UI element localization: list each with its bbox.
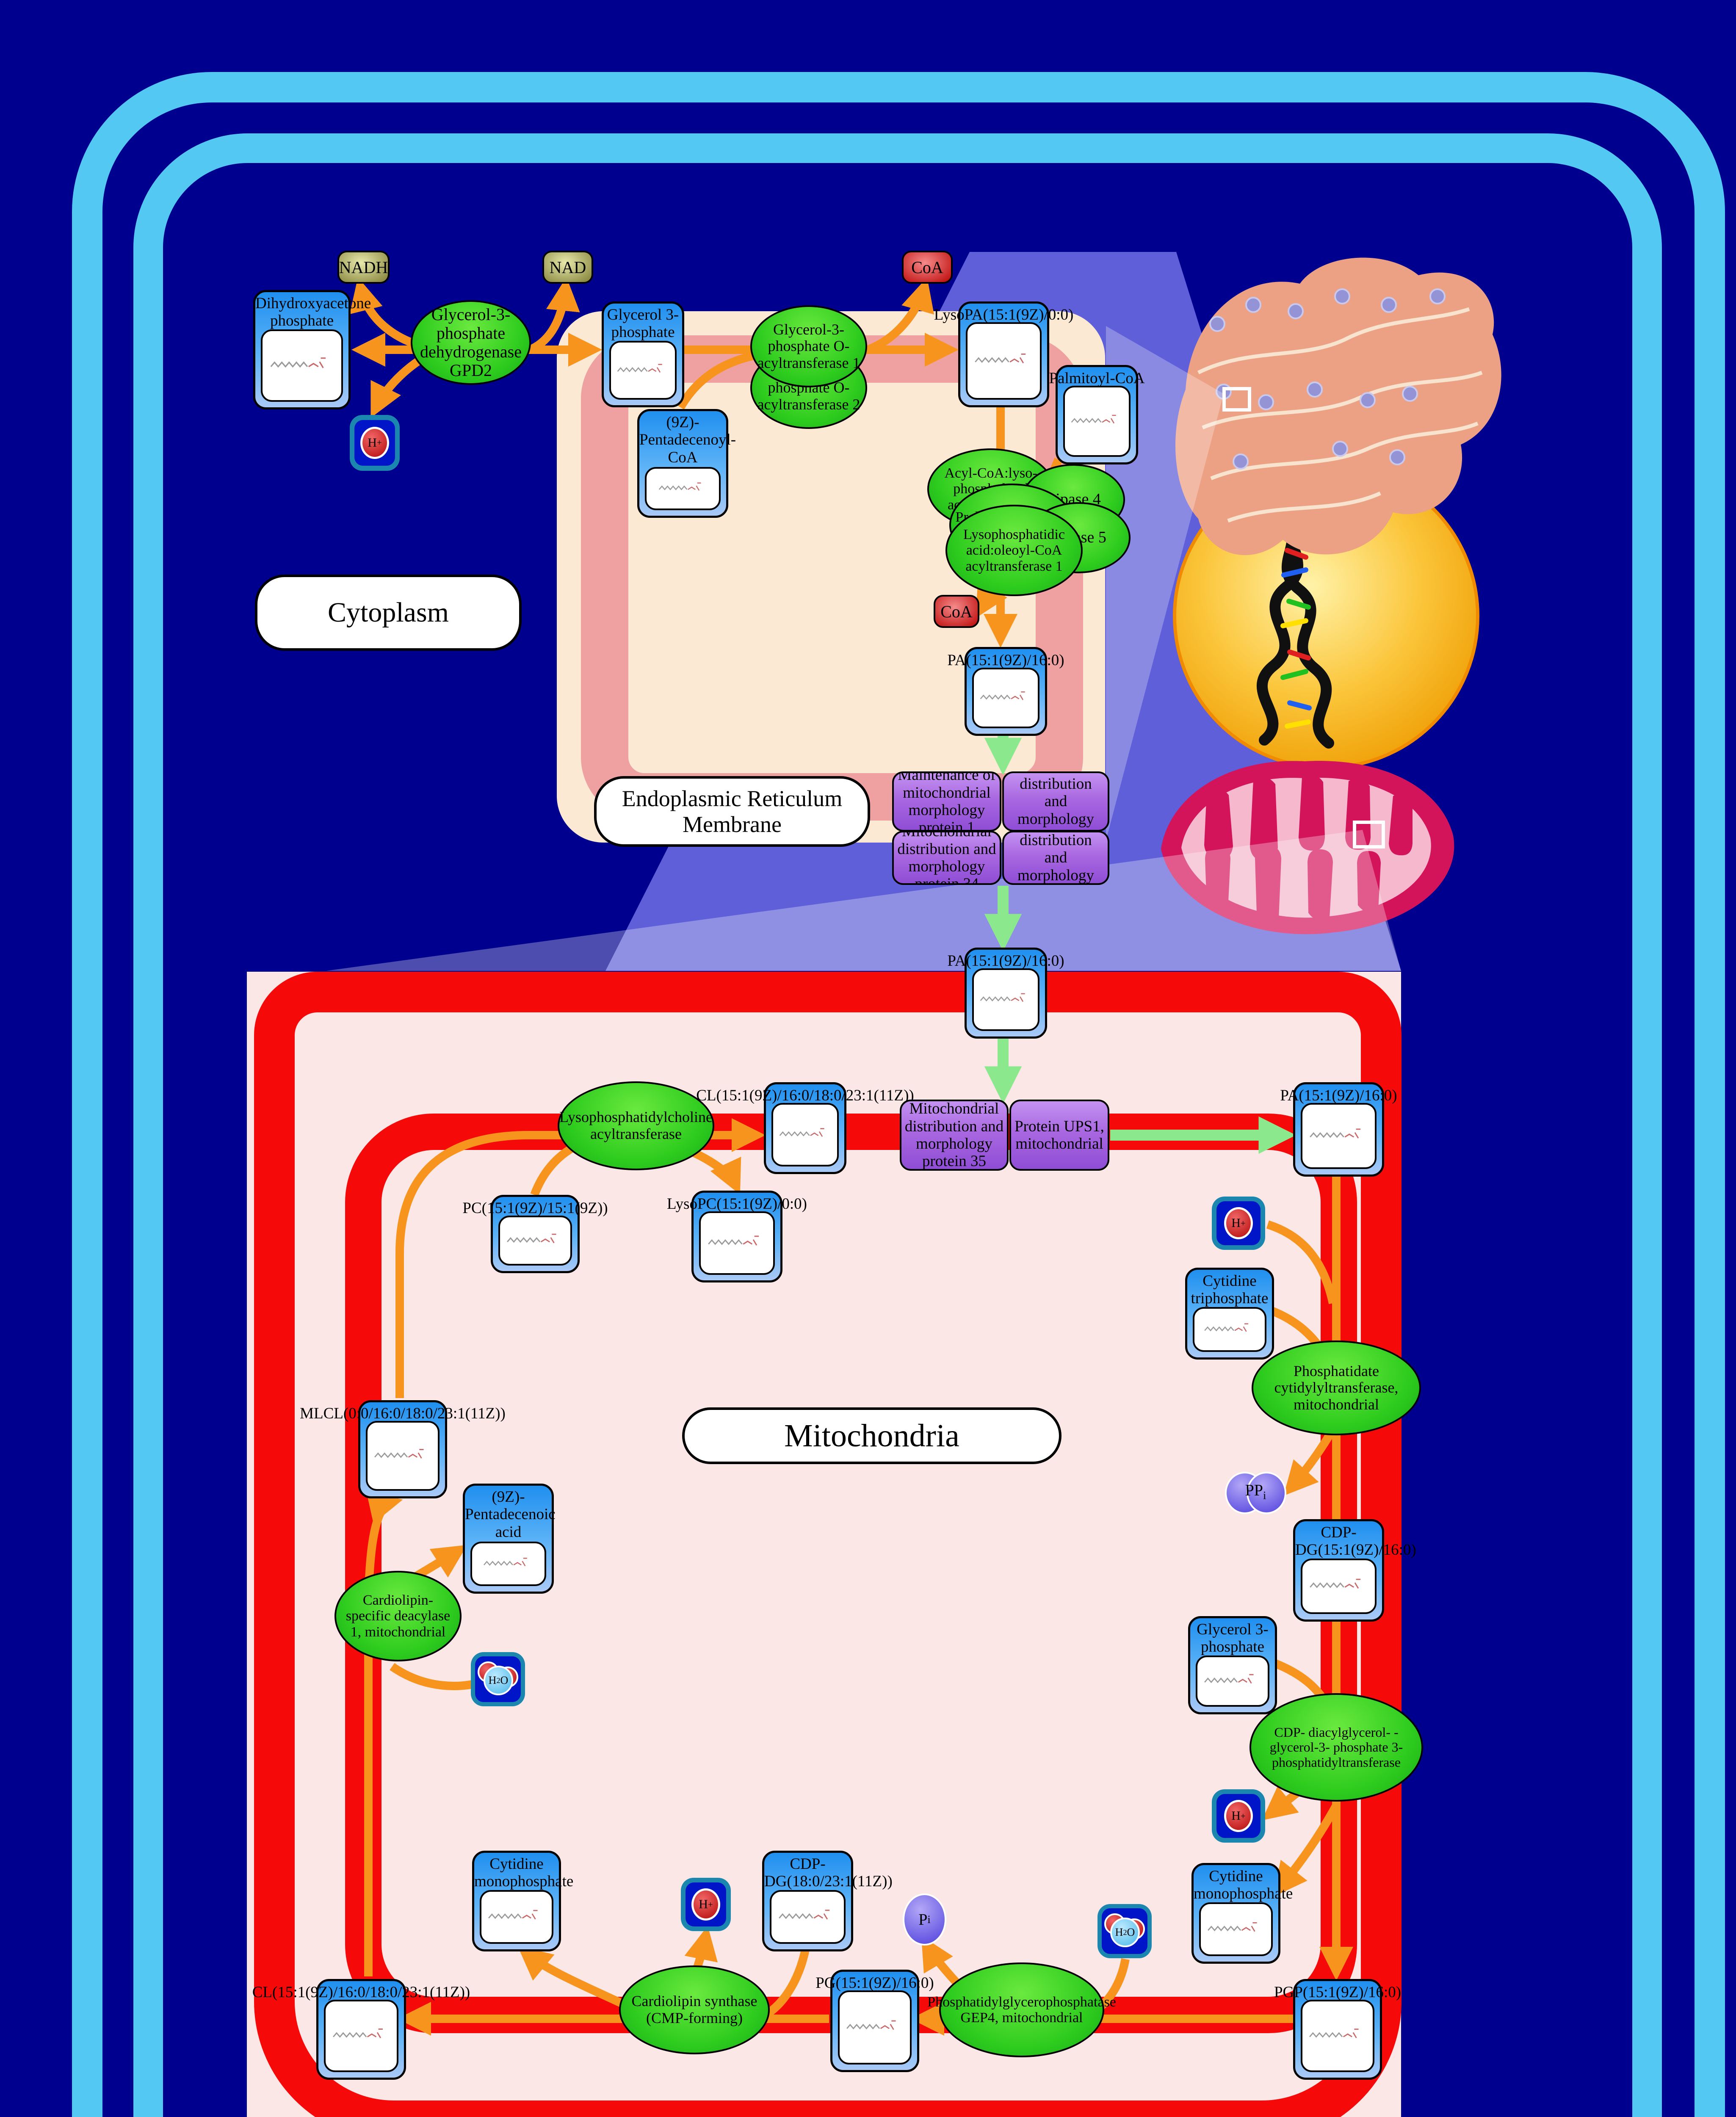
pathway-canvas: { "compartments": { "cytoplasm": "Cytopl…: [0, 0, 1736, 2117]
metabolite-pa-right[interactable]: PA(15:1(9Z)/16:0): [1293, 1082, 1384, 1177]
metabolite-palmitoyl-coa[interactable]: Palmitoyl-CoA: [1056, 365, 1138, 464]
molecule-structure: [1308, 2012, 1367, 2060]
ion-inner: H+: [1216, 1794, 1260, 1838]
metabolite-structure-panel: [366, 1421, 440, 1491]
metabolite-structure-panel: [770, 1890, 846, 1944]
metabolite-label: PA(15:1(9Z)/16:0): [1280, 1087, 1397, 1104]
molecule-structure: [487, 1899, 546, 1935]
enzyme-phosphatidate-cytidylyltransferase[interactable]: Phosphatidate cytidylyltransferase, mito…: [1252, 1340, 1421, 1435]
metabolite-label: Glycerol 3-phosphate: [604, 306, 682, 341]
metabolite-glycerol-3-phosphate-cytoplasm[interactable]: Glycerol 3-phosphate: [602, 301, 684, 407]
metabolite-structure-panel: [1063, 386, 1131, 457]
metabolite-structure-panel: [838, 1990, 912, 2064]
metabolite-structure-panel: [771, 1103, 839, 1166]
metabolite-label: PC(15:1(9Z)/15:1(9Z)): [462, 1199, 608, 1217]
metabolite-pc[interactable]: PC(15:1(9Z)/15:1(9Z)): [491, 1195, 580, 1273]
proton-ball: H+: [360, 427, 389, 459]
metabolite-structure-panel: [1301, 2000, 1374, 2072]
water-ball: H2O: [1110, 1918, 1140, 1947]
metabolite-cytidine-triphosphate[interactable]: Cytidine triphosphate: [1185, 1268, 1274, 1360]
molecule-structure: [1308, 1114, 1369, 1158]
protein-label: Mitochondrial distribution and morpholog…: [1006, 771, 1105, 832]
metabolite-structure-panel: [972, 668, 1039, 728]
metabolite-cl-top[interactable]: CL(15:1(9Z)/16:0/18:0/23:1(11Z)): [764, 1082, 846, 1174]
metabolite-label: (9Z)- Pentadecenoyl- CoA: [639, 414, 726, 466]
enzyme-lpaat1[interactable]: Lysophosphatidic acid:oleoyl-CoA acyltra…: [945, 505, 1083, 596]
molecule-structure: [1206, 1912, 1266, 1947]
metabolite-pa-mito-top[interactable]: PA(15:1(9Z)/16:0): [965, 948, 1047, 1039]
molecule-structure: [1308, 1568, 1369, 1604]
metabolite-label: CDP- DG(18:0/23:1(11Z)): [764, 1855, 851, 1890]
molecule-structure: [331, 2012, 392, 2060]
molecule-structure: [706, 1222, 768, 1264]
cofactor-coa-mid[interactable]: CoA: [934, 595, 979, 628]
metabolite-label: Cytidine triphosphate: [1187, 1272, 1272, 1307]
metabolite-pentadecenoic-acid[interactable]: (9Z)- Pentadecenoic acid: [463, 1484, 554, 1594]
water-ball: H2O: [484, 1666, 513, 1695]
ion-inner: H+: [354, 420, 395, 466]
enzyme-label: Cardiolipin- specific deacylase 1, mitoc…: [339, 1592, 457, 1640]
cofactor-h2o-left[interactable]: H2O: [471, 1652, 525, 1706]
metabolite-cytidine-monophosphate-left[interactable]: Cytidine monophosphate: [472, 1851, 561, 1951]
metabolite-structure-panel: [1301, 1103, 1377, 1169]
metabolite-structure-panel: [261, 329, 343, 402]
proton-ball: H+: [1224, 1207, 1253, 1239]
er-zoom-source-square: [1222, 387, 1251, 412]
ion-inner: H+: [686, 1882, 727, 1926]
enzyme-gpd2[interactable]: Glycerol-3- phosphate dehydrogenase GPD2: [411, 300, 531, 385]
molecule-structure: [373, 1433, 432, 1479]
molecule-structure: [478, 1550, 539, 1578]
cofactor-h-plus-cytoplasm[interactable]: H+: [350, 415, 400, 471]
metabolite-lysopa[interactable]: LysoPA(15:1(9Z)/0:0): [958, 301, 1049, 407]
enzyme-label: Glycerol-3- phosphate dehydrogenase GPD2: [415, 305, 527, 380]
metabolite-pg[interactable]: PG(15:1(9Z)/16:0): [830, 1970, 919, 2072]
cofactor-coa-top[interactable]: CoA: [902, 251, 953, 284]
proton-ball: H+: [691, 1888, 720, 1921]
metabolite-structure-panel: [470, 1542, 546, 1586]
metabolite-label: (9Z)- Pentadecenoic acid: [465, 1488, 552, 1541]
molecule-structure: [777, 1899, 838, 1935]
enzyme-cardiolipin-synthase[interactable]: Cardiolipin synthase (CMP-forming): [619, 1965, 770, 2054]
metabolite-label: Palmitoyl-CoA: [1049, 370, 1144, 387]
protein-mdm34[interactable]: Mitochondrial distribution and morpholog…: [892, 831, 1001, 885]
enzyme-gpat1[interactable]: Glycerol-3- phosphate O-acyltransferase …: [750, 305, 867, 387]
metabolite-label: Glycerol 3-phosphate: [1190, 1621, 1275, 1656]
protein-mdm12[interactable]: Mitochondrial distribution and morpholog…: [1002, 771, 1109, 832]
metabolite-label: CL(15:1(9Z)/16:0/18:0/23:1(11Z)): [696, 1087, 914, 1104]
molecule-structure: [973, 335, 1034, 387]
metabolite-label: PGP(15:1(9Z)/16:0): [1274, 1984, 1401, 2001]
metabolite-pentadecenoyl-coa[interactable]: (9Z)- Pentadecenoyl- CoA: [637, 409, 728, 518]
enzyme-label: Cardiolipin synthase (CMP-forming): [623, 1993, 766, 2026]
molecule-structure: [979, 678, 1033, 718]
molecule-structure: [652, 475, 713, 503]
metabolite-label: CDP- DG(15:1(9Z)/16:0): [1295, 1524, 1382, 1559]
node-layer: Dihydroxyacetone phosphateGlycerol 3-pho…: [0, 0, 1736, 2117]
metabolite-label: LysoPC(15:1(9Z)/0:0): [667, 1195, 807, 1213]
metabolite-structure-panel: [498, 1216, 572, 1266]
molecule-structure: [1070, 398, 1124, 445]
molecule-structure: [1200, 1315, 1259, 1344]
metabolite-pa-er[interactable]: PA(15:1(9Z)/16:0): [965, 647, 1047, 736]
metabolite-structure-panel: [1301, 1559, 1377, 1614]
cofactor-h-plus-upper-right[interactable]: H+: [1212, 1197, 1265, 1250]
metabolite-label: PG(15:1(9Z)/16:0): [815, 1974, 934, 1992]
molecule-structure: [1202, 1664, 1262, 1698]
metabolite-structure-panel: [1193, 1307, 1266, 1352]
enzyme-label: Lysophosphatidic acid:oleoyl-CoA acyltra…: [950, 527, 1078, 574]
metabolite-structure-panel: [966, 322, 1042, 400]
metabolite-glycerol-3-phosphate-mito[interactable]: Glycerol 3-phosphate: [1188, 1616, 1277, 1714]
enzyme-label: CDP- diacylglycerol- -glycerol-3- phosph…: [1254, 1725, 1419, 1770]
molecule-structure: [845, 2003, 904, 2052]
enzyme-cdp-dag-g3p-phosphatidyltransferase[interactable]: CDP- diacylglycerol- -glycerol-3- phosph…: [1249, 1693, 1423, 1802]
metabolite-label: Dihydroxyacetone phosphate: [255, 295, 348, 330]
protein-mmm1[interactable]: Maintenance of mitochondrial morphology …: [892, 771, 1001, 832]
molecule-structure: [616, 351, 670, 390]
protein-label: Maintenance of mitochondrial morphology …: [896, 771, 997, 832]
metabolite-label: MLCL(0:0/16:0/18:0/23:1(11Z)): [300, 1405, 506, 1422]
cofactor-nadh[interactable]: NADH: [337, 251, 390, 284]
protein-label: Mitochondrial distribution and morpholog…: [896, 831, 997, 885]
cofactor-h-plus-lower-right[interactable]: H+: [1212, 1789, 1265, 1843]
metabolite-label: Cytidine monophosphate: [474, 1855, 559, 1890]
metabolite-cytidine-monophosphate-right[interactable]: Cytidine monophosphate: [1191, 1863, 1280, 1964]
protein-mdm10[interactable]: Mitochondrial distribution and morpholog…: [1002, 831, 1109, 885]
molecule-structure: [505, 1224, 565, 1257]
metabolite-cl-bottom[interactable]: CL(15:1(9Z)/16:0/18:0/23:1(11Z)): [316, 1979, 406, 2080]
cofactor-h-plus-bottom[interactable]: H+: [681, 1878, 731, 1931]
metabolite-structure-panel: [972, 968, 1039, 1031]
protein-label: Mitochondrial distribution and morpholog…: [1006, 831, 1105, 885]
molecule-structure: [778, 1114, 832, 1155]
enzyme-label: Phosphatidylglycerophosphatase GEP4, mit…: [927, 1994, 1116, 2026]
enzyme-cld1[interactable]: Cardiolipin- specific deacylase 1, mitoc…: [334, 1571, 462, 1661]
cofactor-ppi[interactable]: PPi: [1225, 1468, 1286, 1515]
metabolite-cdp-dg-bottom[interactable]: CDP- DG(18:0/23:1(11Z)): [762, 1851, 853, 1951]
metabolite-structure-panel: [1196, 1655, 1269, 1707]
metabolite-structure-panel: [645, 467, 721, 510]
mito-zoom-source-square: [1353, 821, 1385, 848]
ion-inner: H+: [1216, 1201, 1260, 1245]
enzyme-lpcat[interactable]: Lysophosphatidylcholine acyltransferase: [558, 1081, 714, 1170]
metabolite-structure-panel: [480, 1890, 553, 1944]
metabolite-label: PA(15:1(9Z)/16:0): [947, 952, 1064, 970]
metabolite-label: CL(15:1(9Z)/16:0/18:0/23:1(11Z)): [252, 1984, 470, 2001]
protein-label: Protein UPS1, mitochondrial: [1014, 1118, 1105, 1153]
metabolite-cdp-dg-right[interactable]: CDP- DG(15:1(9Z)/16:0): [1293, 1519, 1384, 1622]
metabolite-mlcl[interactable]: MLCL(0:0/16:0/18:0/23:1(11Z)): [358, 1400, 447, 1498]
enzyme-label: Phosphatidate cytidylyltransferase, mito…: [1256, 1363, 1417, 1413]
metabolite-structure-panel: [324, 2000, 398, 2072]
protein-ups1[interactable]: Protein UPS1, mitochondrial: [1009, 1100, 1109, 1171]
enzyme-label: Glycerol-3- phosphate O-acyltransferase …: [755, 321, 863, 372]
enzyme-label: Lysophosphatidylcholine acyltransferase: [559, 1109, 713, 1142]
metabolite-pgp[interactable]: PGP(15:1(9Z)/16:0): [1293, 1979, 1382, 2080]
cofactor-h2o-bottom[interactable]: H2O: [1097, 1904, 1152, 1958]
cofactor-pi[interactable]: Pi: [903, 1893, 946, 1946]
metabolite-lysopc[interactable]: LysoPC(15:1(9Z)/0:0): [691, 1191, 782, 1282]
molecule-structure: [979, 979, 1033, 1020]
metabolite-label: LysoPA(15:1(9Z)/0:0): [934, 306, 1074, 323]
metabolite-structure-panel: [609, 341, 677, 400]
metabolite-structure-panel: [1199, 1902, 1273, 1956]
proton-ball: H+: [1224, 1800, 1253, 1832]
metabolite-label: PA(15:1(9Z)/16:0): [947, 652, 1064, 669]
cofactor-nad[interactable]: NAD: [542, 251, 593, 284]
enzyme-gep4[interactable]: Phosphatidylglycerophosphatase GEP4, mit…: [939, 1962, 1104, 2057]
protein-label: Mitochondrial distribution and morpholog…: [904, 1100, 1004, 1170]
protein-mdm35[interactable]: Mitochondrial distribution and morpholog…: [900, 1100, 1009, 1171]
metabolite-dhap[interactable]: Dihydroxyacetone phosphate: [253, 290, 351, 409]
molecule-structure: [268, 341, 335, 390]
metabolite-structure-panel: [699, 1211, 775, 1275]
metabolite-label: Cytidine monophosphate: [1194, 1868, 1278, 1903]
